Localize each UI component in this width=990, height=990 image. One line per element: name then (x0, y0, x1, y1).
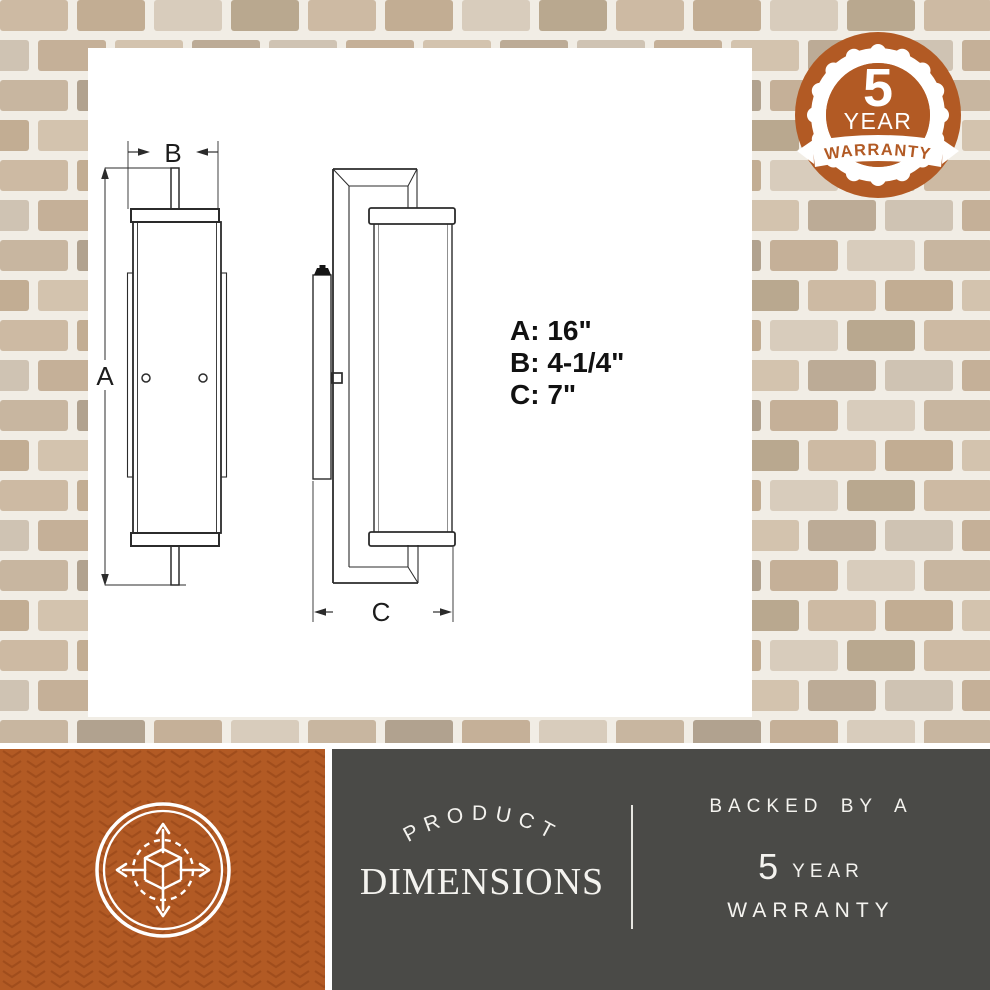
dim-label-c: C (372, 597, 391, 627)
screw-hole-right (199, 374, 207, 382)
svg-text:PRODUCT: PRODUCT (400, 802, 565, 847)
drawing-panel: A B (88, 48, 752, 717)
warranty-text-block: BACKED BY A 5YEAR WARRANTY (632, 749, 990, 990)
five-number: 5 (758, 846, 778, 887)
backed-by-label: BACKED BY A (632, 796, 990, 818)
product-label: PRODUCT (400, 802, 565, 847)
dark-text-panel: PRODUCT DIMENSIONS BACKED BY A 5YEAR WAR… (332, 749, 990, 990)
orange-icon-panel (0, 749, 325, 990)
dimensions-label: DIMENSIONS (332, 860, 632, 904)
badge-year: YEAR (844, 108, 913, 134)
five-year-label: 5YEAR (632, 846, 990, 888)
dim-c-value: C: 7" (510, 379, 576, 410)
product-arc-text: PRODUCT (332, 793, 632, 863)
warranty-word: WARRANTY (632, 899, 990, 923)
technical-drawing: A B (88, 48, 752, 717)
cube-glyph (145, 849, 181, 889)
dim-label-a: A (96, 361, 114, 391)
side-view: C (313, 169, 455, 627)
screw-hole-left (142, 374, 150, 382)
dimension-values: A: 16" B: 4-1/4" C: 7" (510, 315, 624, 410)
dim-b-value: B: 4-1/4" (510, 347, 624, 378)
year-word: YEAR (792, 861, 864, 882)
warranty-badge: 5 YEAR WARRANTY (791, 28, 965, 202)
product-dimensions-infographic: A B (0, 0, 990, 990)
cube-expand-arrows-icon (63, 770, 263, 970)
wall-plate (313, 275, 331, 479)
dim-label-b: B (164, 138, 181, 168)
bottom-banner: PRODUCT DIMENSIONS BACKED BY A 5YEAR WAR… (0, 743, 990, 990)
finial-knob (314, 265, 331, 275)
dim-a-value: A: 16" (510, 315, 592, 346)
front-view: A B (95, 138, 227, 586)
